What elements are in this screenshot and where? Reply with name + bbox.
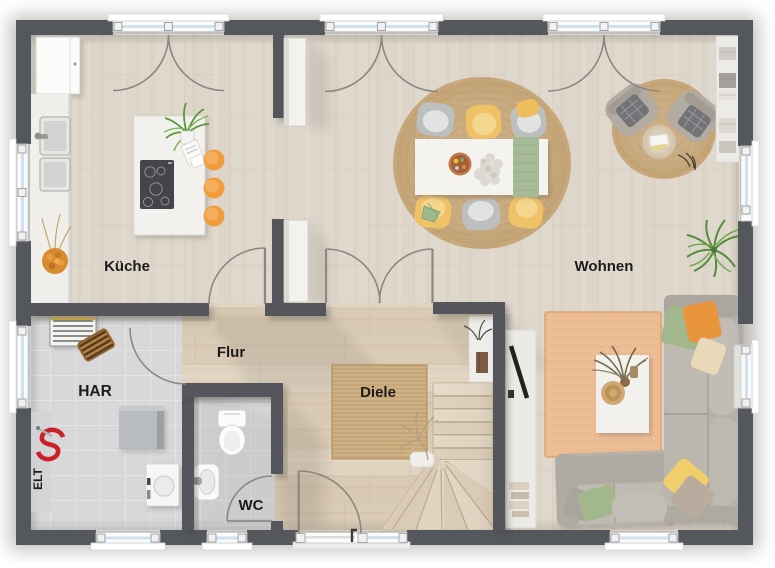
svg-text:HAR: HAR — [78, 383, 112, 400]
svg-text:Küche: Küche — [104, 258, 150, 275]
svg-text:Diele: Diele — [360, 384, 396, 401]
svg-text:WC: WC — [239, 497, 264, 514]
svg-text:Wohnen: Wohnen — [575, 258, 634, 275]
svg-text:Flur: Flur — [217, 344, 245, 361]
svg-text:ELT: ELT — [31, 467, 45, 489]
